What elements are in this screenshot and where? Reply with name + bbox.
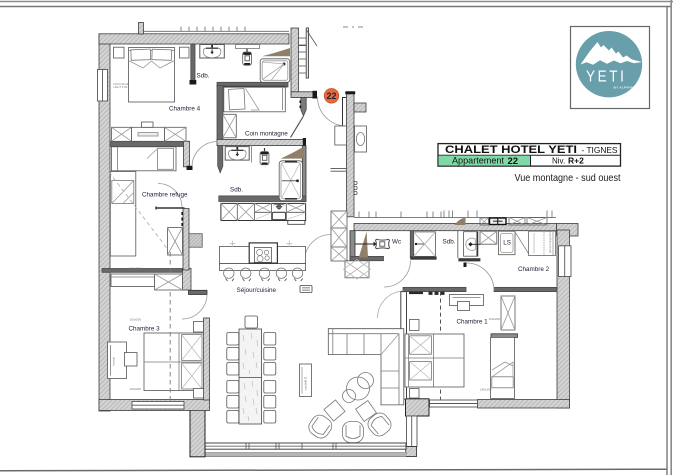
- svg-text:Chambre 1: Chambre 1: [457, 319, 489, 326]
- svg-text:Wc: Wc: [392, 239, 401, 246]
- svg-text:Coin montagne: Coin montagne: [245, 131, 288, 138]
- svg-text:bureau: bureau: [112, 356, 116, 365]
- svg-text:160x200: 160x200: [130, 318, 142, 322]
- svg-text:140x190: 140x190: [480, 388, 492, 392]
- svg-text:160x200: 160x200: [489, 317, 501, 321]
- svg-text:Séjour/cuisine: Séjour/cuisine: [237, 287, 277, 294]
- svg-text:Chambre 4: Chambre 4: [169, 106, 201, 113]
- svg-text:meuble: meuble: [304, 381, 308, 391]
- svg-text:Appartement: Appartement: [452, 156, 505, 166]
- svg-text:Sdb.: Sdb.: [197, 73, 210, 80]
- svg-text:R+2: R+2: [568, 155, 584, 165]
- svg-text:160x200: 160x200: [130, 267, 142, 271]
- svg-text:placard rangement: placard rangement: [548, 231, 552, 253]
- svg-text:Chambre 2: Chambre 2: [518, 266, 550, 273]
- svg-text:Chambre refuge: Chambre refuge: [142, 192, 188, 199]
- svg-text:CHALET HOTEL YETI: CHALET HOTEL YETI: [445, 144, 577, 156]
- svg-text:YETI: YETI: [586, 69, 627, 86]
- svg-text:- TIGNES: - TIGNES: [582, 146, 619, 155]
- svg-text:Chambre 3: Chambre 3: [129, 326, 161, 333]
- svg-text:BY ALPAPART: BY ALPAPART: [614, 85, 639, 89]
- svg-text:HAUT 1.80: HAUT 1.80: [114, 85, 128, 89]
- svg-text:22: 22: [326, 91, 336, 101]
- svg-text:Vue montagne - sud ouest: Vue montagne - sud ouest: [515, 173, 621, 184]
- svg-text:Sdb.: Sdb.: [443, 239, 456, 246]
- svg-text:Niv.: Niv.: [552, 156, 565, 165]
- svg-text:160x200: 160x200: [130, 387, 142, 391]
- svg-text:LS: LS: [503, 240, 511, 247]
- svg-text:Sdb.: Sdb.: [230, 187, 243, 194]
- svg-text:22: 22: [508, 156, 519, 167]
